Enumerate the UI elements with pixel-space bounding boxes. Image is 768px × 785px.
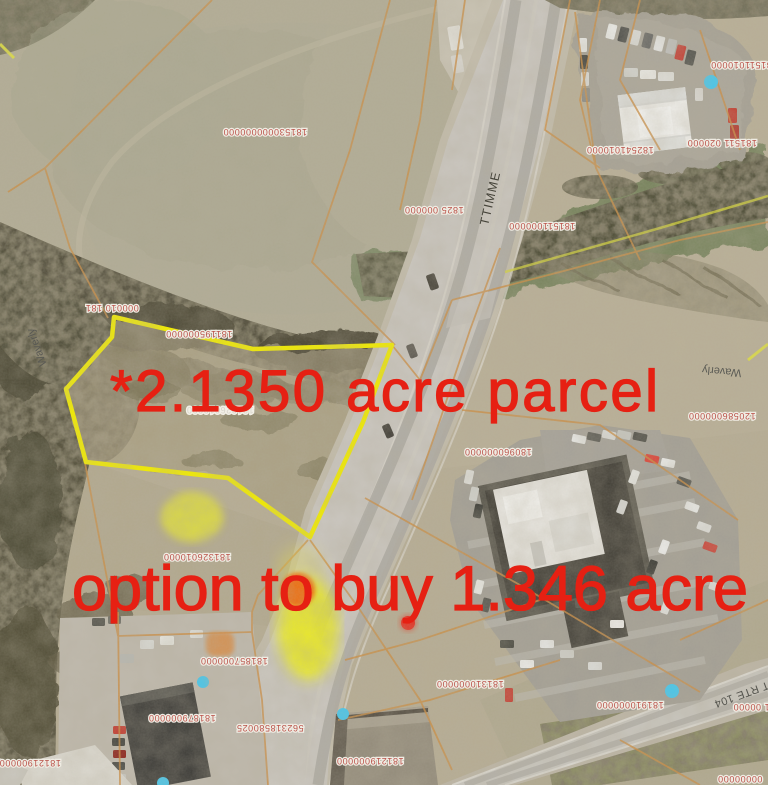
svg-text:181857000000: 181857000000 — [200, 656, 267, 666]
svg-text:182541010000: 182541010000 — [586, 145, 653, 155]
svg-text:Waverly: Waverly — [25, 326, 50, 368]
svg-text:Waverly: Waverly — [701, 363, 742, 378]
svg-text:180960000000: 180960000000 — [464, 447, 531, 457]
svg-text:*2.1350 acre parcel: *2.1350 acre parcel — [110, 359, 661, 424]
svg-text:18121900000: 18121900000 — [0, 758, 61, 768]
svg-text:1825 000000: 1825 000000 — [404, 205, 463, 215]
svg-text:181910000000: 181910000000 — [596, 700, 663, 710]
svg-text:181511010000: 181511010000 — [711, 60, 768, 70]
svg-text:181 00000: 181 00000 — [733, 702, 768, 712]
svg-text:00000000: 00000000 — [718, 774, 763, 784]
svg-text:181219000000: 181219000000 — [336, 756, 403, 766]
svg-text:562318580025: 562318580025 — [236, 723, 303, 733]
svg-text:181511 020000: 181511 020000 — [687, 138, 757, 148]
svg-text:option to buy 1.346 acre: option to buy 1.346 acre — [72, 554, 748, 624]
svg-text:181195000000: 181195000000 — [166, 329, 233, 339]
svg-text:181879000000: 181879000000 — [148, 713, 215, 723]
svg-text:000010 181: 000010 181 — [85, 303, 139, 313]
svg-text:TTIMME: TTIMME — [477, 170, 503, 227]
svg-text:181511000000: 181511000000 — [509, 221, 576, 231]
svg-text:181530000000000: 181530000000000 — [223, 127, 307, 137]
svg-text:181310000000: 181310000000 — [436, 679, 503, 689]
svg-text:120586000000: 120586000000 — [688, 411, 755, 421]
